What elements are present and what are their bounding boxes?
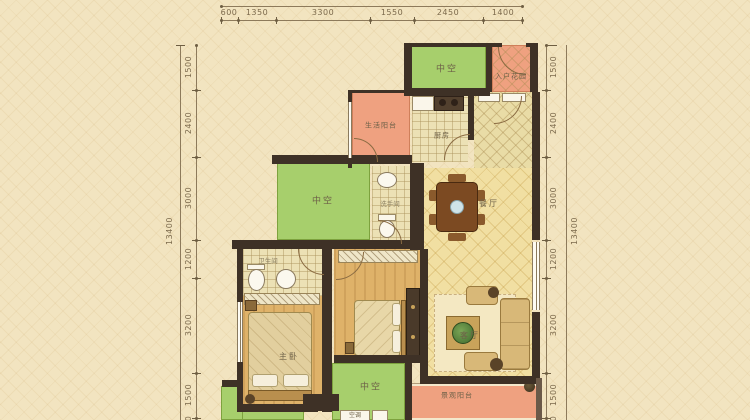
- nightstand: [245, 300, 257, 311]
- side-table: [490, 358, 503, 371]
- dim-tick: [192, 157, 201, 158]
- dim-label: 3300: [312, 9, 334, 17]
- dim-label: 1500: [550, 384, 558, 406]
- sofa: [500, 298, 530, 370]
- wall: [334, 355, 428, 363]
- dim-line-right-segments: [546, 45, 547, 420]
- sink: [276, 269, 296, 289]
- pillow: [392, 303, 401, 326]
- dim-label: 1500: [185, 56, 193, 78]
- dim-label: 600: [221, 9, 238, 17]
- ac-unit: [372, 410, 388, 420]
- dim-tick: [548, 45, 557, 46]
- bed-headboard: [401, 300, 406, 356]
- wall: [404, 88, 490, 96]
- room-label-dining: 餐厅: [479, 200, 499, 208]
- dim-label: 1200: [185, 248, 193, 270]
- room-label-kitchen: 厨房: [434, 133, 450, 140]
- pillow: [392, 330, 401, 353]
- dim-line-left-segments: [196, 45, 197, 420]
- dim-tick: [221, 17, 222, 24]
- ac-label: 空调: [341, 411, 369, 420]
- pillow: [283, 374, 309, 387]
- wall: [303, 394, 339, 411]
- dim-line-right-total: [566, 45, 567, 420]
- room-label-wc: 洗手间: [380, 201, 400, 208]
- window: [237, 302, 243, 362]
- dim-tick: [542, 278, 551, 279]
- dim-label: 3000: [550, 187, 558, 209]
- side-table: [488, 287, 499, 298]
- ac-unit: 空调: [340, 410, 370, 420]
- room-label-bath: 卫生间: [258, 258, 278, 265]
- dining-centerpiece: [450, 200, 464, 214]
- dim-tick: [542, 157, 551, 158]
- dim-label: 2400: [550, 112, 558, 134]
- room-label-living: 客厅: [460, 332, 480, 340]
- toilet: [248, 269, 265, 291]
- floor-plan-canvas: 600 1350 3300 1550 2450 1400 13400 1500 …: [0, 0, 750, 420]
- wall: [410, 163, 424, 250]
- dining-chair: [477, 214, 485, 225]
- dim-label: 600: [185, 416, 193, 420]
- room-label-void-mid: 中空: [312, 198, 334, 207]
- wall: [405, 363, 412, 420]
- dim-tick: [370, 17, 371, 24]
- wall: [222, 380, 242, 387]
- dim-tick: [521, 5, 524, 8]
- room-label-void-bottom: 中空: [360, 384, 382, 393]
- dim-tick: [414, 17, 415, 24]
- wall: [272, 155, 412, 164]
- dim-label: 1400: [492, 9, 514, 17]
- dining-chair: [448, 174, 466, 182]
- stove-burner: [439, 99, 446, 106]
- dim-label: 3200: [185, 314, 193, 336]
- wall: [348, 90, 410, 93]
- dim-label: 1350: [246, 9, 268, 17]
- dim-tick: [276, 17, 277, 24]
- dim-tick: [192, 90, 201, 91]
- wall: [468, 92, 474, 140]
- dim-tick: [192, 418, 201, 419]
- dim-label-total: 13400: [571, 217, 579, 245]
- pillow: [252, 374, 278, 387]
- dim-line-top-total: [221, 6, 523, 7]
- dim-label: 600: [550, 416, 558, 420]
- wardrobe-handle: [411, 305, 415, 309]
- room-label-view-balcony: 景观阳台: [441, 393, 473, 400]
- dim-tick: [238, 17, 239, 24]
- wall: [532, 92, 540, 240]
- window: [532, 242, 540, 310]
- dim-tick: [542, 90, 551, 91]
- wardrobe: [406, 288, 420, 356]
- dim-tick: [192, 373, 201, 374]
- dim-line-top-segments: [221, 20, 523, 21]
- dim-tick: [522, 17, 523, 24]
- dim-tick: [542, 373, 551, 374]
- wall: [420, 249, 428, 384]
- dim-label: 1550: [381, 9, 403, 17]
- wardrobe-handle: [411, 335, 415, 339]
- dim-label: 3200: [550, 314, 558, 336]
- stove-burner: [451, 99, 458, 106]
- dining-chair: [448, 233, 466, 241]
- dim-tick: [195, 44, 198, 47]
- dim-tick: [483, 17, 484, 24]
- wall: [530, 43, 538, 92]
- kitchen-counter: [412, 96, 434, 111]
- sink: [377, 172, 397, 188]
- dim-label: 1200: [550, 248, 558, 270]
- dim-tick: [192, 240, 201, 241]
- wall: [532, 312, 540, 380]
- wall: [404, 43, 412, 92]
- nightstand: [345, 342, 354, 354]
- dim-label: 3000: [185, 187, 193, 209]
- dim-tick: [176, 45, 185, 46]
- dim-line-left-total: [180, 45, 181, 420]
- dim-tick: [192, 278, 201, 279]
- stool: [245, 394, 255, 404]
- wall: [536, 378, 542, 420]
- dim-label: 1500: [185, 384, 193, 406]
- room-view-balcony: [408, 384, 538, 420]
- room-label-void-top: 中空: [436, 66, 458, 75]
- room-label-service-balcony: 生活阳台: [365, 123, 397, 130]
- dim-label: 2450: [437, 9, 459, 17]
- room-label-entry-garden: 入户花园: [495, 74, 527, 81]
- wall: [486, 45, 492, 92]
- dim-label-total: 13400: [166, 217, 174, 245]
- dim-tick: [542, 240, 551, 241]
- wall: [420, 376, 536, 384]
- room-label-master: 主卧: [279, 353, 299, 361]
- dim-label: 1500: [550, 56, 558, 78]
- dim-label: 2400: [185, 112, 193, 134]
- window: [348, 102, 352, 158]
